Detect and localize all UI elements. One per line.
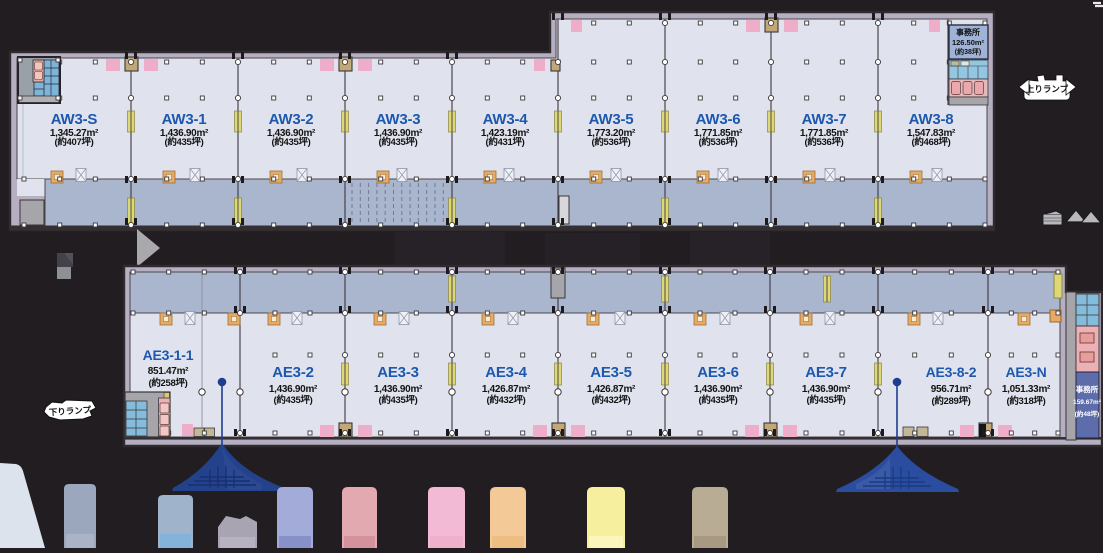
svg-text:AW3-S: AW3-S bbox=[51, 111, 98, 128]
svg-text:1,436.90m²: 1,436.90m² bbox=[694, 384, 743, 395]
svg-text:(約318坪): (約318坪) bbox=[1006, 395, 1045, 407]
svg-text:AW3-7: AW3-7 bbox=[802, 111, 847, 128]
svg-text:851.47m²: 851.47m² bbox=[148, 366, 189, 377]
svg-text:(約38坪): (約38坪) bbox=[955, 47, 981, 56]
svg-text:AW3-6: AW3-6 bbox=[696, 111, 741, 128]
svg-text:AE3-1-1: AE3-1-1 bbox=[143, 347, 194, 363]
svg-text:(約48坪): (約48坪) bbox=[1075, 409, 1100, 418]
svg-text:(約435坪): (約435坪) bbox=[271, 136, 310, 148]
svg-text:(約435坪): (約435坪) bbox=[378, 136, 417, 148]
svg-text:AW3-5: AW3-5 bbox=[589, 111, 634, 128]
svg-text:1,436.90m²: 1,436.90m² bbox=[269, 384, 318, 395]
svg-text:事務所: 事務所 bbox=[1076, 384, 1099, 394]
svg-text:(約468坪): (約468坪) bbox=[911, 136, 950, 148]
svg-text:956.71m²: 956.71m² bbox=[931, 384, 972, 395]
svg-text:AE3-2: AE3-2 bbox=[272, 364, 314, 381]
svg-text:(約536坪): (約536坪) bbox=[698, 136, 737, 148]
svg-text:159.67m²: 159.67m² bbox=[1073, 399, 1102, 406]
svg-text:AE3-7: AE3-7 bbox=[805, 364, 847, 381]
svg-text:(約289坪): (約289坪) bbox=[931, 395, 970, 407]
svg-text:1,436.90m²: 1,436.90m² bbox=[374, 384, 423, 395]
svg-text:(約435坪): (約435坪) bbox=[164, 136, 203, 148]
svg-text:AE3-5: AE3-5 bbox=[590, 364, 632, 381]
svg-text:事務所: 事務所 bbox=[956, 27, 980, 37]
svg-text:AE3-6: AE3-6 bbox=[697, 364, 739, 381]
svg-text:AE3-N: AE3-N bbox=[1005, 364, 1046, 380]
svg-text:AW3-8: AW3-8 bbox=[909, 111, 954, 128]
svg-text:(約435坪): (約435坪) bbox=[273, 394, 312, 406]
svg-text:(約536坪): (約536坪) bbox=[591, 136, 630, 148]
svg-text:AE3-3: AE3-3 bbox=[377, 364, 419, 381]
svg-text:(約536坪): (約536坪) bbox=[804, 136, 843, 148]
svg-text:AW3-3: AW3-3 bbox=[376, 111, 421, 128]
svg-text:126.50m²: 126.50m² bbox=[952, 38, 985, 47]
svg-text:(約431坪): (約431坪) bbox=[485, 136, 524, 148]
svg-text:(約407坪): (約407坪) bbox=[54, 136, 93, 148]
svg-text:(約258坪): (約258坪) bbox=[148, 377, 187, 389]
svg-text:上りランプ: 上りランプ bbox=[1026, 84, 1069, 94]
svg-text:(約435坪): (約435坪) bbox=[378, 394, 417, 406]
svg-text:(約435坪): (約435坪) bbox=[698, 394, 737, 406]
svg-text:AE3-4: AE3-4 bbox=[485, 364, 527, 381]
svg-text:(約435坪): (約435坪) bbox=[806, 394, 845, 406]
svg-text:1,436.90m²: 1,436.90m² bbox=[802, 384, 851, 395]
svg-text:(約432坪): (約432坪) bbox=[591, 394, 630, 406]
svg-text:(約432坪): (約432坪) bbox=[486, 394, 525, 406]
svg-text:AW3-2: AW3-2 bbox=[269, 111, 314, 128]
svg-text:AW3-4: AW3-4 bbox=[483, 111, 529, 128]
svg-text:AW3-1: AW3-1 bbox=[162, 111, 207, 128]
svg-text:AE3-8-2: AE3-8-2 bbox=[926, 364, 977, 380]
svg-text:1,426.87m²: 1,426.87m² bbox=[482, 384, 531, 395]
svg-text:1,426.87m²: 1,426.87m² bbox=[587, 384, 636, 395]
svg-text:1,051.33m²: 1,051.33m² bbox=[1002, 384, 1051, 395]
